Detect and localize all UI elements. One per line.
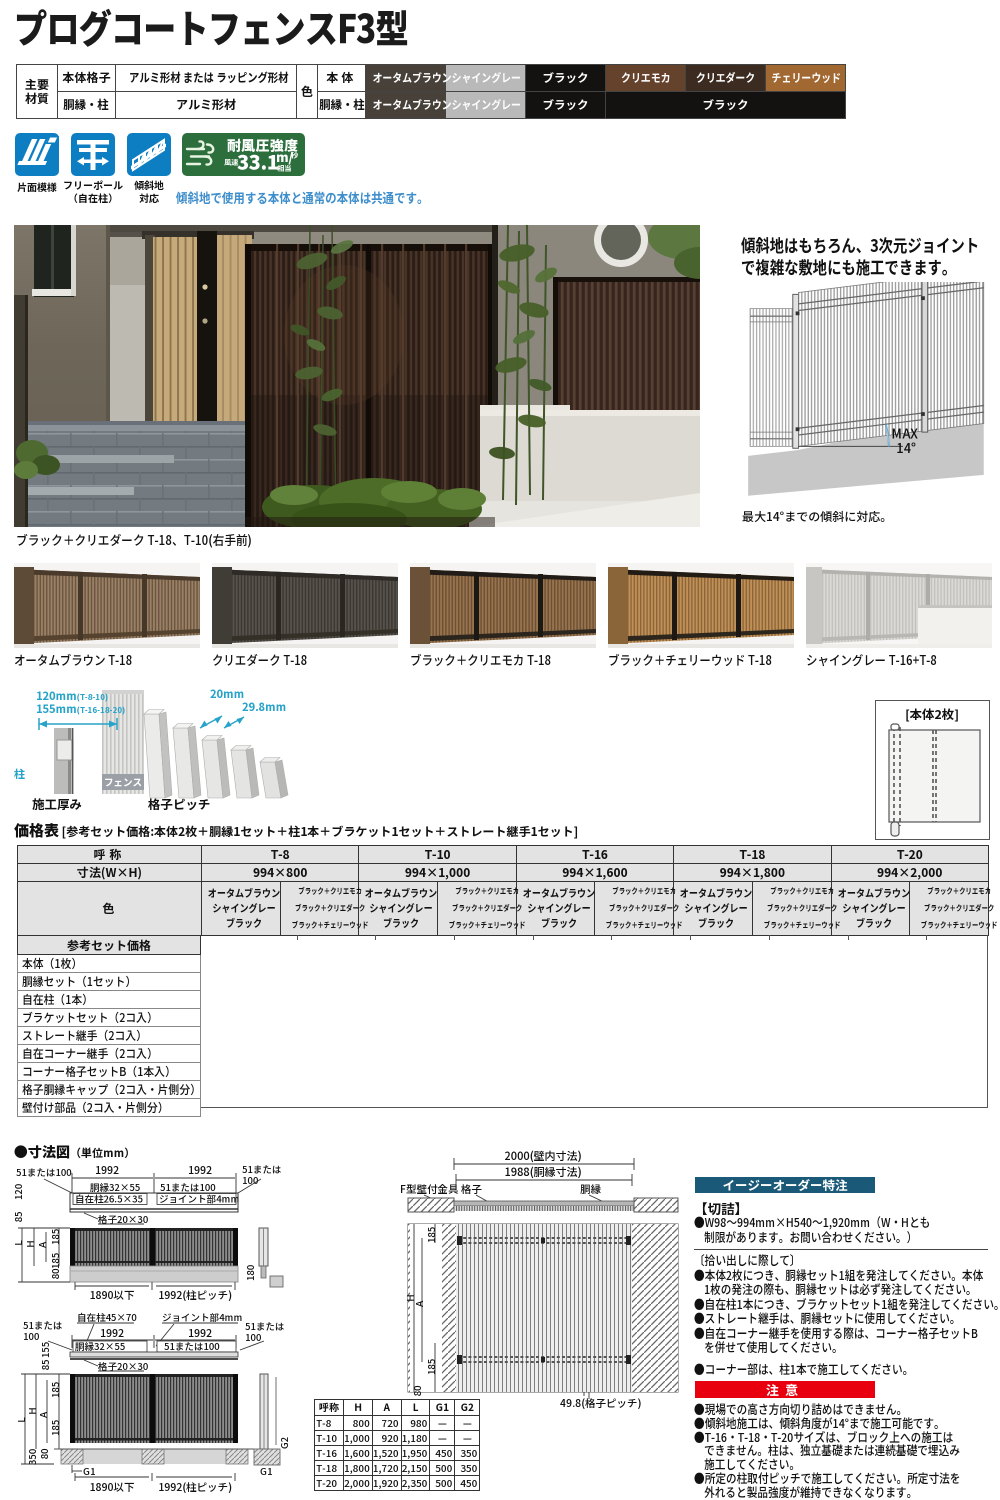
svg-text:80: 80 [37, 1449, 51, 1460]
svg-text:胴縁32×55: 胴縁32×55 [75, 1339, 125, 1353]
svg-text:1890以下: 1890以下 [90, 1480, 135, 1495]
svg-text:155: 155 [38, 1342, 52, 1358]
svg-text:2000(壁内寸法): 2000(壁内寸法) [505, 1148, 582, 1164]
svg-text:100: 100 [23, 1329, 39, 1343]
svg-text:A: A [34, 1241, 49, 1248]
svg-text:自在柱45×70: 自在柱45×70 [77, 1310, 137, 1324]
svg-text:ジョイント部4mm: ジョイント部4mm [159, 1192, 239, 1206]
svg-text:49.8(格子ピッチ): 49.8(格子ピッチ) [560, 1396, 641, 1411]
svg-text:秒: 秒 [290, 151, 298, 161]
svg-text:A: A [411, 1300, 426, 1307]
svg-text:80: 80 [410, 1386, 424, 1397]
svg-text:G1: G1 [260, 1463, 273, 1478]
svg-text:[本体2枚]: [本体2枚] [905, 704, 959, 723]
svg-text:120: 120 [14, 1184, 25, 1200]
svg-text:185: 185 [48, 1253, 62, 1269]
svg-text:1988(胴縁寸法): 1988(胴縁寸法) [505, 1164, 582, 1180]
svg-text:85: 85 [38, 1360, 52, 1371]
svg-text:185: 185 [424, 1359, 438, 1375]
svg-text:柱: 柱 [14, 766, 25, 782]
svg-text:1992(柱ピッチ): 1992(柱ピッチ) [158, 1480, 232, 1495]
svg-text:100: 100 [245, 1330, 261, 1344]
svg-text:ジョイント部4mm: ジョイント部4mm [162, 1310, 242, 1324]
svg-text:51または100: 51または100 [164, 1339, 220, 1353]
svg-text:A: A [35, 1411, 50, 1418]
svg-text:80: 80 [48, 1269, 62, 1280]
svg-text:G1: G1 [83, 1463, 96, 1478]
svg-text:85: 85 [14, 1212, 25, 1223]
svg-text:格子ピッチ: 格子ピッチ [148, 794, 211, 813]
svg-text:H: H [402, 1294, 417, 1301]
svg-text:14°: 14° [896, 438, 916, 457]
svg-text:フェンス: フェンス [104, 774, 142, 789]
svg-text:相当: 相当 [276, 164, 291, 174]
svg-text:185: 185 [48, 1382, 62, 1398]
svg-text:施工厚み: 施工厚み [32, 794, 83, 813]
svg-text:1992: 1992 [188, 1163, 213, 1178]
svg-text:1890以下: 1890以下 [90, 1288, 135, 1303]
svg-text:100: 100 [242, 1173, 258, 1187]
svg-text:180: 180 [243, 1265, 257, 1281]
svg-text:G2: G2 [277, 1436, 291, 1449]
svg-text:185: 185 [48, 1420, 62, 1436]
svg-text:自在柱26.5×35: 自在柱26.5×35 [75, 1192, 143, 1206]
svg-text:185: 185 [424, 1227, 438, 1243]
svg-text:F型壁付金具 格子: F型壁付金具 格子 [400, 1182, 482, 1197]
svg-text:33.1: 33.1 [237, 147, 279, 176]
svg-text:29.8mm: 29.8mm [242, 699, 286, 715]
svg-text:1992(柱ピッチ): 1992(柱ピッチ) [158, 1288, 232, 1303]
svg-text:胴縁: 胴縁 [580, 1182, 601, 1197]
svg-text:185: 185 [48, 1229, 62, 1245]
svg-text:51または100: 51または100 [16, 1165, 72, 1179]
svg-text:1992: 1992 [95, 1163, 120, 1178]
svg-text:20mm: 20mm [210, 686, 244, 702]
svg-text:L: L [14, 1417, 28, 1423]
